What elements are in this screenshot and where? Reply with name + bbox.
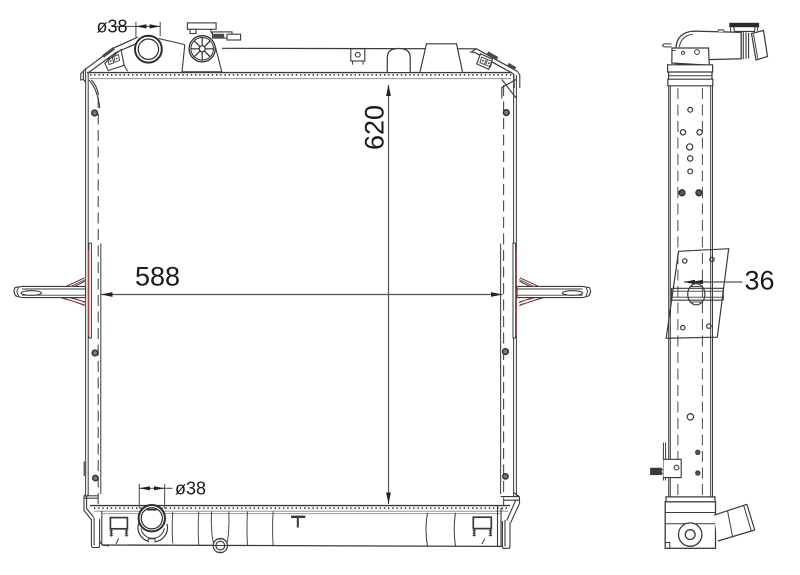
svg-text:ø38: ø38 — [175, 479, 206, 499]
svg-text:620: 620 — [360, 105, 390, 150]
svg-text:ø38: ø38 — [97, 17, 128, 37]
svg-text:36: 36 — [745, 266, 775, 296]
svg-text:588: 588 — [135, 262, 180, 292]
